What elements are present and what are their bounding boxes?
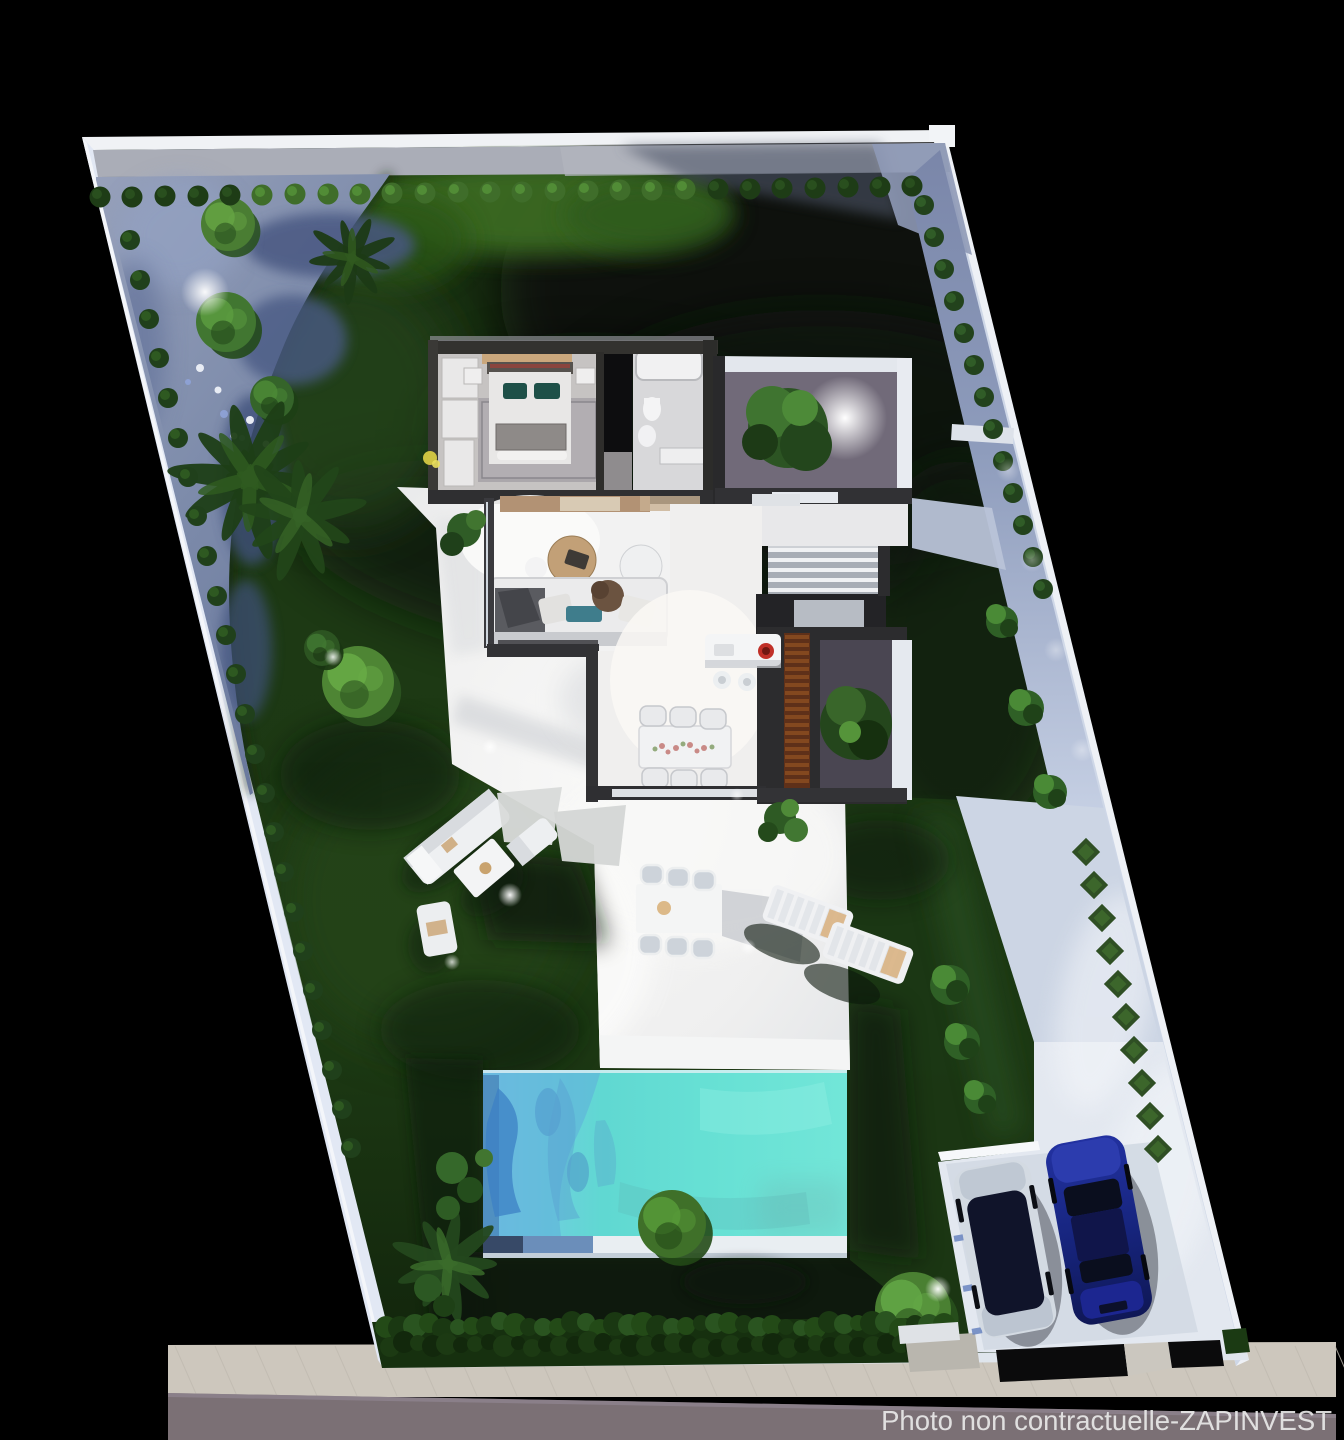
svg-text:Photo non contractuelle-ZAPINV: Photo non contractuelle-ZAPINVEST xyxy=(881,1405,1332,1436)
